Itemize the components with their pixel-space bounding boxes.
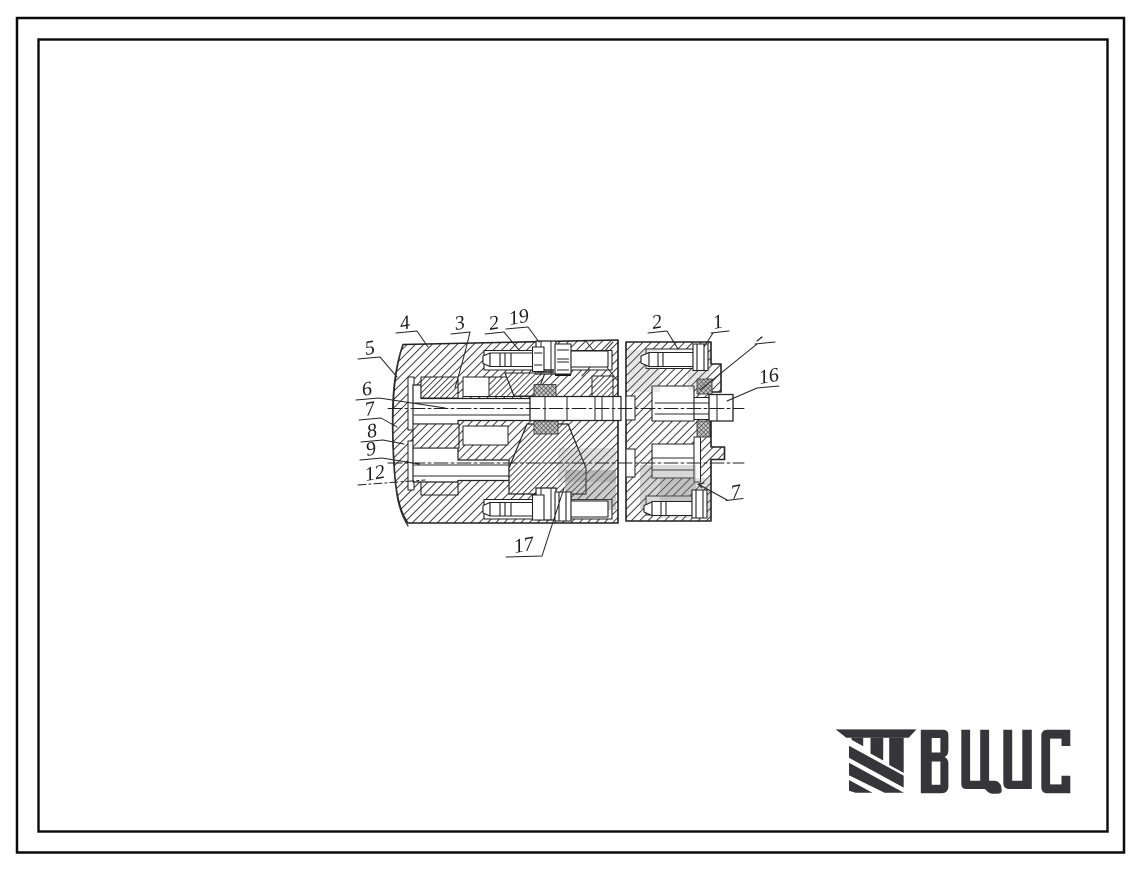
svg-text:19: 19	[507, 305, 531, 330]
svg-text:12: 12	[363, 461, 387, 486]
svg-text:16: 16	[757, 364, 781, 389]
